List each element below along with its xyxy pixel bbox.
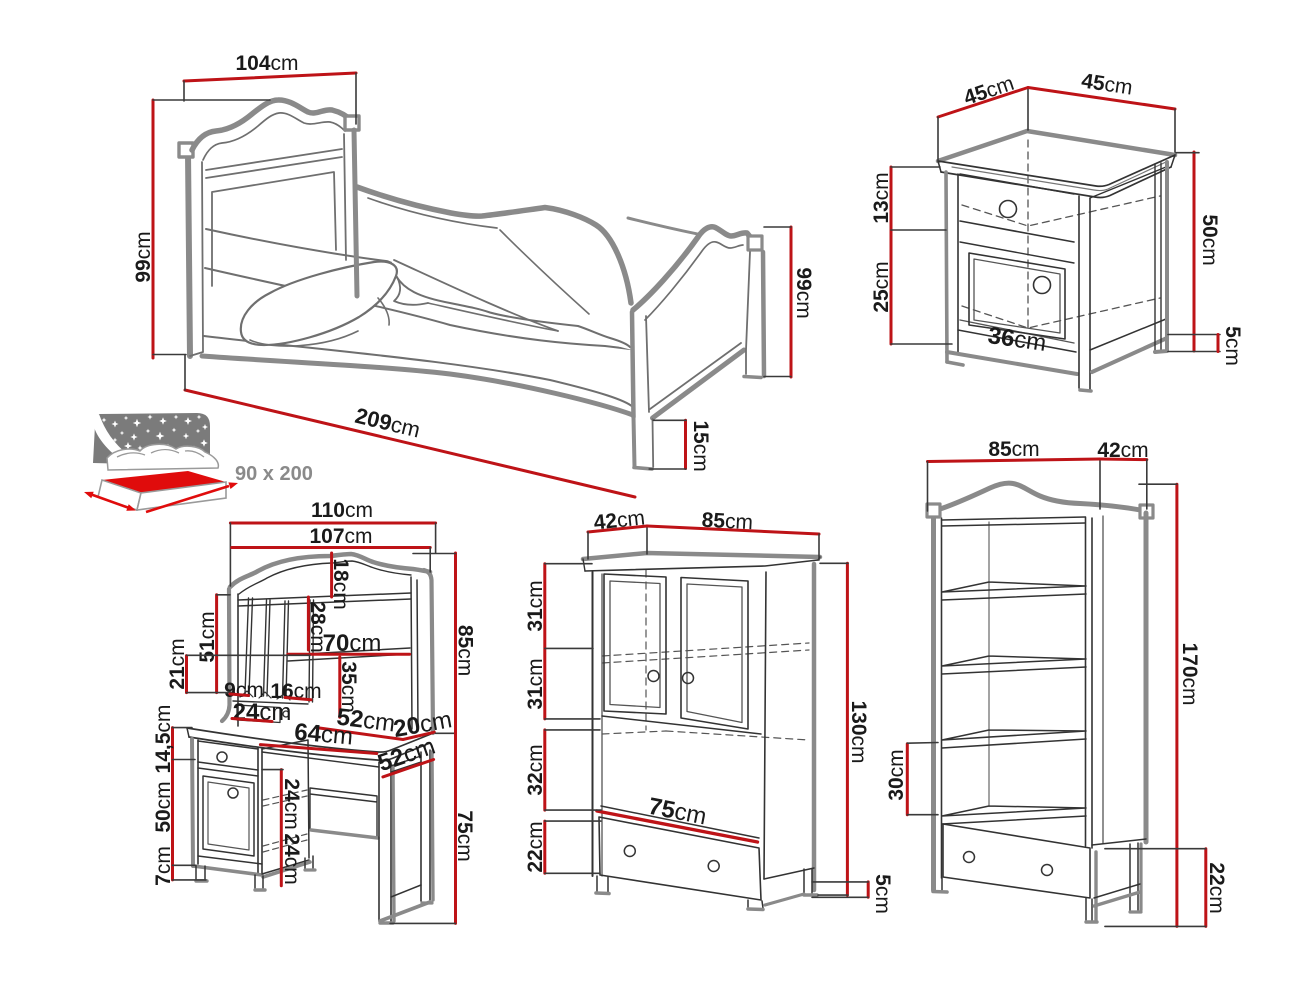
svg-text:170cm: 170cm bbox=[1178, 642, 1201, 705]
svg-text:90 x 200: 90 x 200 bbox=[235, 463, 313, 485]
svg-text:5cm: 5cm bbox=[1221, 326, 1244, 366]
svg-text:104cm: 104cm bbox=[235, 52, 298, 75]
svg-text:21cm: 21cm bbox=[166, 638, 189, 689]
svg-text:110cm: 110cm bbox=[311, 499, 373, 522]
svg-text:107cm: 107cm bbox=[309, 525, 372, 548]
svg-text:130cm: 130cm bbox=[847, 700, 870, 763]
svg-text:75cm: 75cm bbox=[646, 793, 709, 831]
svg-text:22cm: 22cm bbox=[1205, 862, 1228, 913]
svg-text:75cm: 75cm bbox=[453, 810, 476, 861]
svg-text:22cm: 22cm bbox=[524, 821, 547, 872]
svg-text:13cm: 13cm bbox=[870, 172, 893, 223]
svg-text:18cm: 18cm bbox=[329, 558, 352, 609]
svg-text:99cm: 99cm bbox=[792, 267, 815, 318]
svg-text:85cm: 85cm bbox=[988, 438, 1039, 461]
svg-text:45cm: 45cm bbox=[961, 72, 1017, 110]
svg-text:50cm: 50cm bbox=[152, 781, 175, 832]
svg-text:24cm: 24cm bbox=[280, 778, 303, 829]
svg-text:5cm: 5cm bbox=[871, 874, 894, 914]
svg-text:7cm: 7cm bbox=[152, 846, 175, 886]
svg-text:50cm: 50cm bbox=[1198, 214, 1221, 265]
svg-text:31cm: 31cm bbox=[524, 580, 547, 631]
svg-text:85cm: 85cm bbox=[701, 509, 753, 535]
svg-text:31cm: 31cm bbox=[524, 658, 547, 709]
svg-text:14,5cm: 14,5cm bbox=[152, 705, 175, 774]
svg-text:36cm: 36cm bbox=[986, 322, 1048, 357]
svg-text:99cm: 99cm bbox=[132, 231, 155, 282]
svg-text:42cm: 42cm bbox=[1097, 439, 1148, 462]
svg-text:25cm: 25cm bbox=[870, 261, 893, 312]
svg-text:85cm: 85cm bbox=[454, 625, 477, 676]
svg-text:32cm: 32cm bbox=[524, 744, 547, 795]
svg-text:70cm: 70cm bbox=[323, 630, 382, 657]
svg-text:64cm: 64cm bbox=[293, 719, 354, 751]
svg-text:15cm: 15cm bbox=[689, 420, 712, 471]
svg-text:42cm: 42cm bbox=[593, 506, 646, 534]
svg-text:24cm: 24cm bbox=[280, 833, 303, 884]
svg-text:30cm: 30cm bbox=[885, 749, 908, 800]
svg-text:209cm: 209cm bbox=[353, 403, 423, 443]
